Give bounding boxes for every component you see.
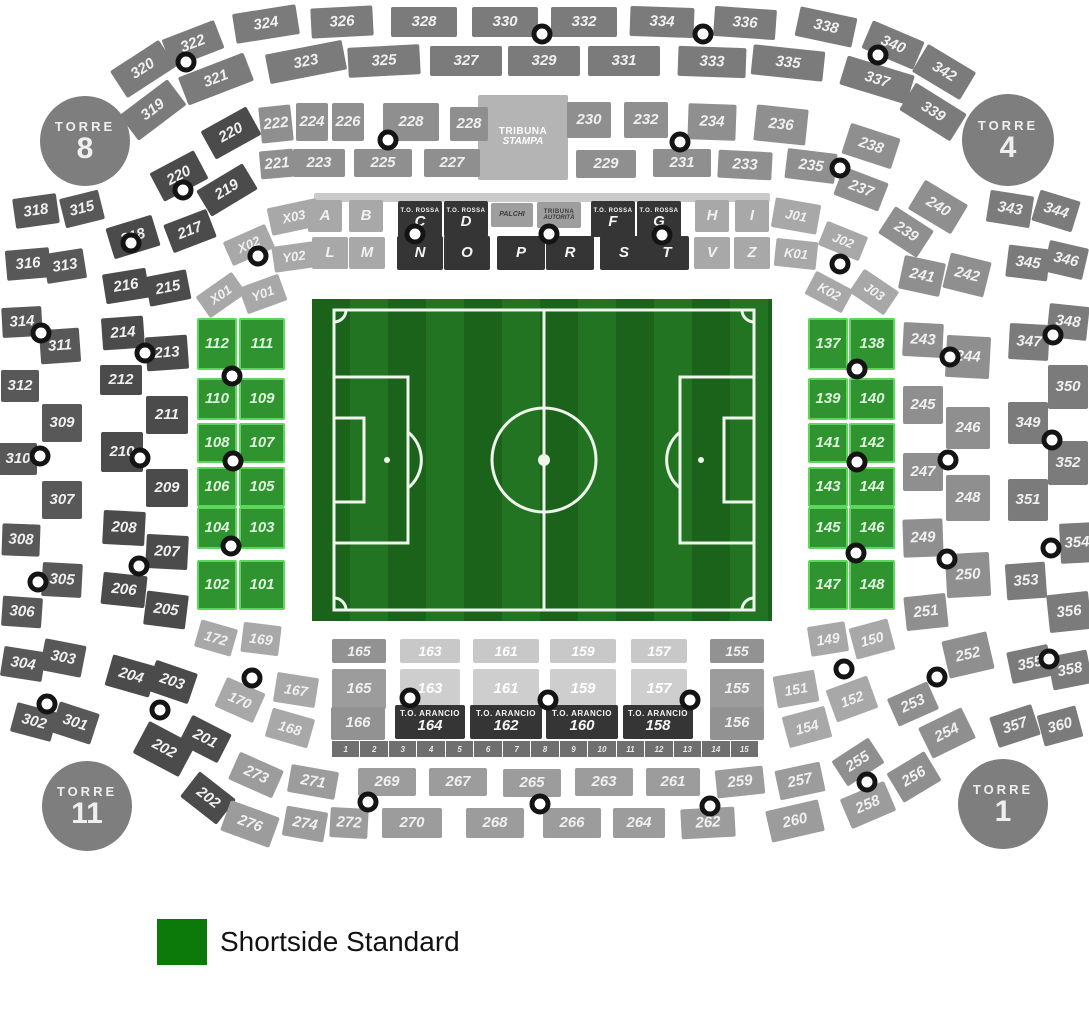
section-162: T.O. ARANCIO162: [470, 705, 542, 739]
section-Z: Z: [734, 237, 770, 269]
section-157: 157: [631, 669, 687, 709]
section-332: 332: [551, 7, 617, 37]
row-number-4: 4: [417, 741, 444, 757]
section-105[interactable]: 105: [239, 467, 285, 507]
section-225: 225: [354, 149, 412, 177]
section-Y01: Y01: [238, 274, 287, 315]
row-number-9: 9: [560, 741, 587, 757]
section-268: 268: [466, 808, 524, 838]
entrance-marker: [680, 690, 701, 711]
section-264: 264: [613, 808, 665, 838]
entrance-marker: [846, 543, 867, 564]
section-109[interactable]: 109: [239, 378, 285, 420]
section-325: 325: [347, 44, 420, 78]
section-304: 304: [0, 646, 46, 682]
section-222: 222: [258, 104, 294, 143]
section-P: P: [497, 236, 545, 270]
section-221: 221: [259, 149, 295, 180]
section-272: 272: [329, 807, 369, 839]
entrance-marker: [652, 225, 673, 246]
torre-4: TORRE4: [962, 94, 1054, 186]
section-344: 344: [1031, 190, 1081, 233]
row-number-13: 13: [674, 741, 701, 757]
section-246: 246: [946, 407, 990, 449]
entrance-marker: [223, 451, 244, 472]
section-326: 326: [310, 5, 373, 38]
entrance-marker: [538, 690, 559, 711]
entrance-marker: [248, 246, 269, 267]
stadium-seat-map: Shortside Standard TRIBUNASTAMPA32032232…: [0, 0, 1089, 1032]
entrance-marker: [130, 448, 151, 469]
section-149: 149: [807, 621, 849, 657]
section-156: 156: [710, 707, 764, 740]
section-M: M: [349, 237, 385, 269]
section-307: 307: [42, 481, 82, 519]
section-155: 155: [710, 639, 764, 663]
section-217: 217: [163, 209, 217, 253]
section-101[interactable]: 101: [239, 560, 285, 610]
row-number-3: 3: [389, 741, 416, 757]
section-141[interactable]: 141: [808, 423, 848, 463]
section-313: 313: [43, 248, 87, 284]
entrance-marker: [530, 794, 551, 815]
section-227: 227: [424, 149, 480, 177]
entrance-marker: [830, 158, 851, 179]
section-331: 331: [588, 46, 660, 76]
section-301: 301: [50, 701, 100, 744]
row-number-1: 1: [332, 741, 359, 757]
section-168: 168: [265, 708, 316, 749]
section-155: 155: [710, 669, 764, 709]
section-253: 253: [887, 681, 939, 726]
section-315: 315: [59, 190, 105, 229]
section-F: T.O. ROSSAF: [591, 201, 635, 237]
section-229: 229: [576, 150, 636, 178]
section-164: T.O. ARANCIO164: [395, 705, 465, 739]
section-172: 172: [194, 619, 238, 656]
section-260: 260: [765, 799, 825, 842]
section-J03: J03: [849, 269, 899, 316]
section-157: 157: [631, 639, 687, 663]
section-165: 165: [332, 639, 386, 663]
entrance-marker: [378, 130, 399, 151]
section-158: T.O. ARANCIO158: [623, 705, 693, 739]
section-238: 238: [841, 123, 900, 170]
section-350: 350: [1048, 365, 1088, 409]
row-number-6: 6: [474, 741, 501, 757]
section-X01: X01: [196, 272, 247, 319]
section-318: 318: [12, 193, 60, 229]
pitch-markings: [312, 299, 772, 621]
section-152: 152: [826, 676, 879, 723]
section-B: B: [349, 200, 383, 232]
section-323: 323: [265, 40, 347, 84]
entrance-marker: [28, 572, 49, 593]
entrance-marker: [940, 347, 961, 368]
tribuna-stampa: TRIBUNASTAMPA: [478, 95, 568, 180]
section-161: 161: [473, 639, 539, 663]
entrance-marker: [857, 772, 878, 793]
section-216: 216: [102, 268, 150, 305]
legend: Shortside Standard: [157, 919, 460, 965]
section-265: 265: [503, 769, 561, 797]
entrance-marker: [405, 224, 426, 245]
entrance-marker: [135, 343, 156, 364]
entrance-marker: [221, 536, 242, 557]
row-number-15: 15: [731, 741, 758, 757]
entrance-marker: [1043, 325, 1064, 346]
entrance-marker: [830, 254, 851, 275]
section-144[interactable]: 144: [849, 467, 895, 507]
entrance-marker: [1041, 538, 1062, 559]
section-220: 220: [201, 106, 262, 159]
entrance-marker: [927, 667, 948, 688]
section-169: 169: [240, 622, 281, 656]
section-263: 263: [575, 768, 633, 796]
football-pitch: [312, 299, 772, 621]
section-328: 328: [391, 7, 457, 37]
section-271: 271: [287, 764, 339, 800]
section-236: 236: [753, 104, 808, 145]
section-159: 159: [550, 669, 616, 709]
section-206: 206: [100, 572, 147, 608]
entrance-marker: [242, 668, 263, 689]
section-254: 254: [918, 707, 976, 759]
section-107[interactable]: 107: [239, 423, 285, 463]
section-335: 335: [751, 44, 826, 81]
section-163: 163: [400, 639, 460, 663]
section-O: O: [444, 236, 490, 270]
section-303: 303: [39, 638, 86, 677]
section-L: L: [312, 237, 348, 269]
section-160: T.O. ARANCIO160: [546, 705, 618, 739]
entrance-marker: [1039, 649, 1060, 670]
section-333: 333: [677, 46, 746, 78]
section-312: 312: [1, 370, 39, 402]
section-212: 212: [100, 365, 142, 395]
entrance-marker: [121, 233, 142, 254]
entrance-marker: [938, 450, 959, 471]
section-Y02: Y02: [271, 241, 316, 273]
entrance-marker: [847, 452, 868, 473]
section-245: 245: [903, 386, 943, 424]
section-261: 261: [646, 768, 700, 796]
section-150: 150: [849, 618, 896, 659]
entrance-marker: [150, 700, 171, 721]
section-351: 351: [1008, 479, 1048, 521]
section-147[interactable]: 147: [808, 560, 848, 610]
section-208: 208: [102, 510, 146, 546]
section-203: 203: [146, 660, 198, 705]
section-360: 360: [1037, 705, 1084, 746]
section-228: 228: [450, 107, 488, 141]
section-266: 266: [543, 808, 601, 838]
section-145[interactable]: 145: [808, 507, 848, 549]
section-327: 327: [430, 46, 502, 76]
section-S: S: [600, 236, 648, 270]
section-V: V: [694, 237, 730, 269]
row-number-2: 2: [360, 741, 387, 757]
section-252: 252: [941, 631, 994, 678]
entrance-marker: [1042, 430, 1063, 451]
section-242: 242: [942, 252, 991, 297]
torre-11: TORRE11: [42, 761, 132, 851]
section-102[interactable]: 102: [197, 560, 237, 610]
entrance-marker: [173, 180, 194, 201]
entrance-marker: [868, 45, 889, 66]
section-267: 267: [429, 768, 487, 796]
section-241: 241: [898, 255, 946, 297]
section-256: 256: [886, 751, 941, 803]
row-number-11: 11: [617, 741, 644, 757]
section-334: 334: [629, 6, 694, 38]
section-106[interactable]: 106: [197, 467, 237, 507]
section-103[interactable]: 103: [239, 507, 285, 549]
row-number-10: 10: [588, 741, 615, 757]
section-207: 207: [145, 534, 189, 570]
section-166: 166: [331, 707, 385, 740]
section-161: 161: [473, 669, 539, 709]
section-249: 249: [902, 518, 943, 557]
section-159: 159: [550, 639, 616, 663]
section-234: 234: [687, 103, 736, 141]
section-259: 259: [715, 766, 766, 799]
section-336: 336: [713, 6, 777, 40]
row-number-12: 12: [645, 741, 672, 757]
section-139[interactable]: 139: [808, 378, 848, 420]
section-309: 309: [42, 404, 82, 442]
section-354: 354: [1059, 522, 1089, 564]
entrance-marker: [847, 359, 868, 380]
section-223: 223: [293, 149, 345, 177]
section-209: 209: [146, 469, 188, 507]
entrance-marker: [834, 659, 855, 680]
section-276: 276: [220, 800, 280, 848]
section-308: 308: [1, 523, 40, 556]
torre-1: TORRE1: [958, 759, 1048, 849]
section-343: 343: [986, 190, 1034, 228]
section-I: I: [735, 200, 769, 232]
row-number-14: 14: [702, 741, 729, 757]
entrance-marker: [129, 556, 150, 577]
section-151: 151: [773, 670, 820, 709]
section-224: 224: [296, 103, 328, 141]
section-111[interactable]: 111: [239, 318, 285, 370]
section-270: 270: [382, 808, 442, 838]
entrance-marker: [358, 792, 379, 813]
section-226: 226: [332, 103, 364, 141]
section-231: 231: [653, 149, 711, 177]
section-211: 211: [146, 396, 188, 434]
section-274: 274: [282, 806, 329, 843]
section-233: 233: [717, 150, 772, 181]
section-353: 353: [1005, 562, 1047, 601]
row-number-7: 7: [503, 741, 530, 757]
section-329: 329: [508, 46, 580, 76]
entrance-marker: [31, 323, 52, 344]
section-346: 346: [1043, 240, 1089, 280]
section-357: 357: [989, 704, 1041, 748]
torre-8: TORRE8: [40, 96, 130, 186]
entrance-marker: [532, 24, 553, 45]
section-137[interactable]: 137: [808, 318, 848, 370]
section-243: 243: [902, 322, 944, 358]
section-K02: K02: [804, 271, 853, 314]
section-232: 232: [624, 102, 668, 138]
row-number-5: 5: [446, 741, 473, 757]
section-J01: J01: [771, 197, 822, 235]
section-257: 257: [774, 762, 825, 801]
entrance-marker: [30, 446, 51, 467]
entrance-marker: [700, 796, 721, 817]
section-330: 330: [472, 7, 538, 37]
entrance-marker: [37, 694, 58, 715]
section-215: 215: [145, 269, 192, 306]
entrance-marker: [222, 366, 243, 387]
section-306: 306: [1, 596, 43, 629]
section-A: A: [308, 200, 342, 232]
section-273: 273: [228, 752, 284, 799]
section-251: 251: [903, 593, 948, 631]
entrance-marker: [539, 224, 560, 245]
entrance-marker: [400, 688, 421, 709]
section-K01: K01: [774, 238, 819, 270]
palchi: PALCHI: [491, 203, 533, 227]
section-154: 154: [782, 706, 833, 748]
section-338: 338: [795, 6, 858, 47]
section-143[interactable]: 143: [808, 467, 848, 507]
section-167: 167: [273, 672, 319, 708]
row-number-8: 8: [531, 741, 558, 757]
entrance-marker: [176, 52, 197, 73]
section-248: 248: [946, 475, 990, 521]
legend-label: Shortside Standard: [220, 926, 460, 958]
entrance-marker: [937, 549, 958, 570]
section-D: T.O. ROSSAD: [444, 201, 488, 237]
section-112[interactable]: 112: [197, 318, 237, 370]
entrance-marker: [670, 132, 691, 153]
legend-color-swatch: [157, 919, 207, 965]
row-number-strip: 123456789101112131415: [332, 741, 758, 757]
section-165: 165: [332, 669, 386, 709]
section-230: 230: [567, 102, 611, 138]
section-148[interactable]: 148: [849, 560, 895, 610]
entrance-marker: [693, 24, 714, 45]
section-H: H: [695, 200, 729, 232]
section-324: 324: [232, 4, 300, 44]
section-205: 205: [143, 591, 189, 630]
section-140[interactable]: 140: [849, 378, 895, 420]
section-356: 356: [1046, 591, 1089, 633]
